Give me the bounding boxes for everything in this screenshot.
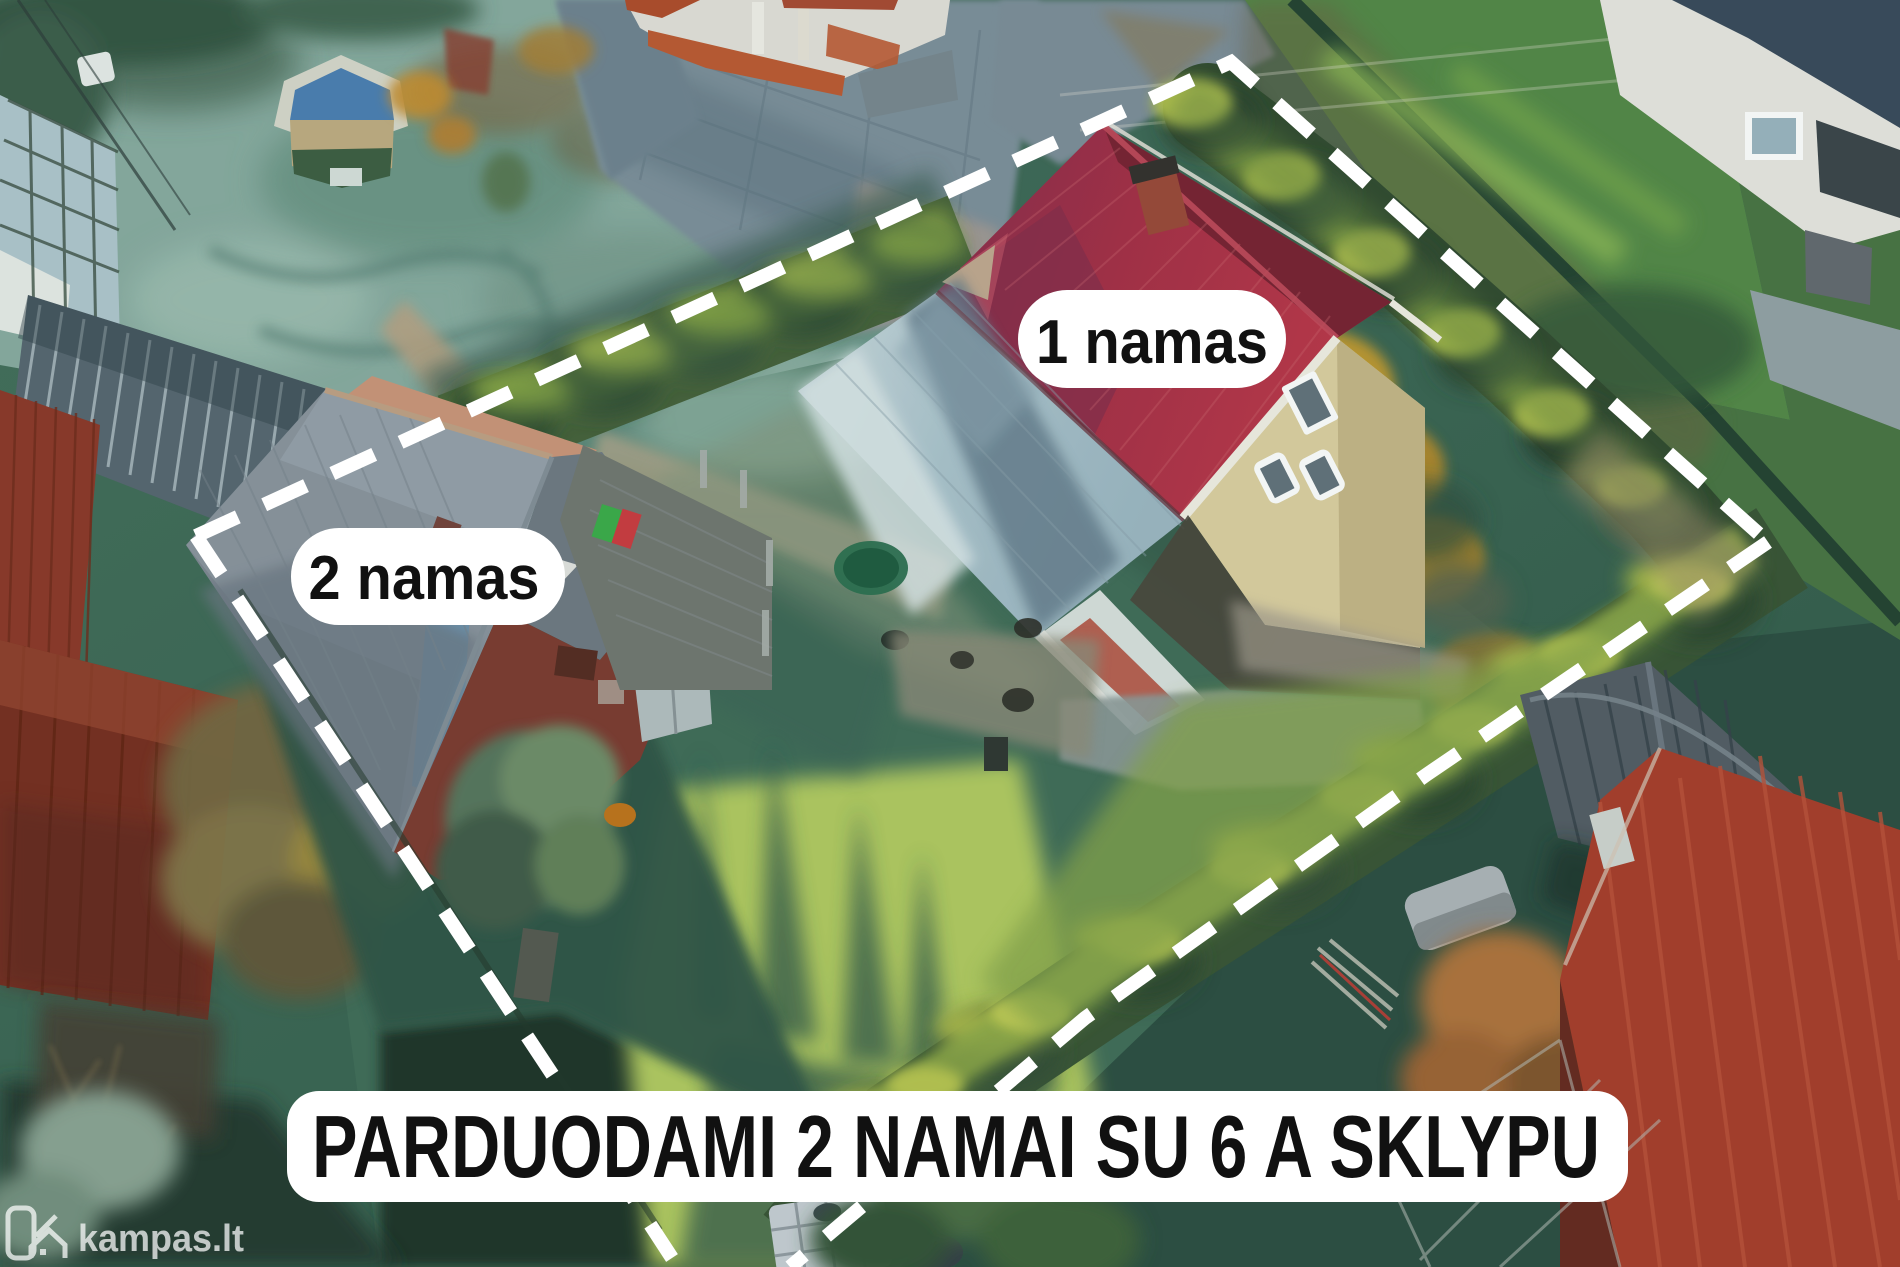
svg-text:1 namas: 1 namas: [1036, 308, 1268, 377]
svg-text:2 namas: 2 namas: [309, 544, 540, 613]
svg-text:kampas.lt: kampas.lt: [78, 1218, 244, 1260]
svg-text:PARDUODAMI 2 NAMAI SU 6 A SKLY: PARDUODAMI 2 NAMAI SU 6 A SKLYPU: [312, 1097, 1600, 1196]
